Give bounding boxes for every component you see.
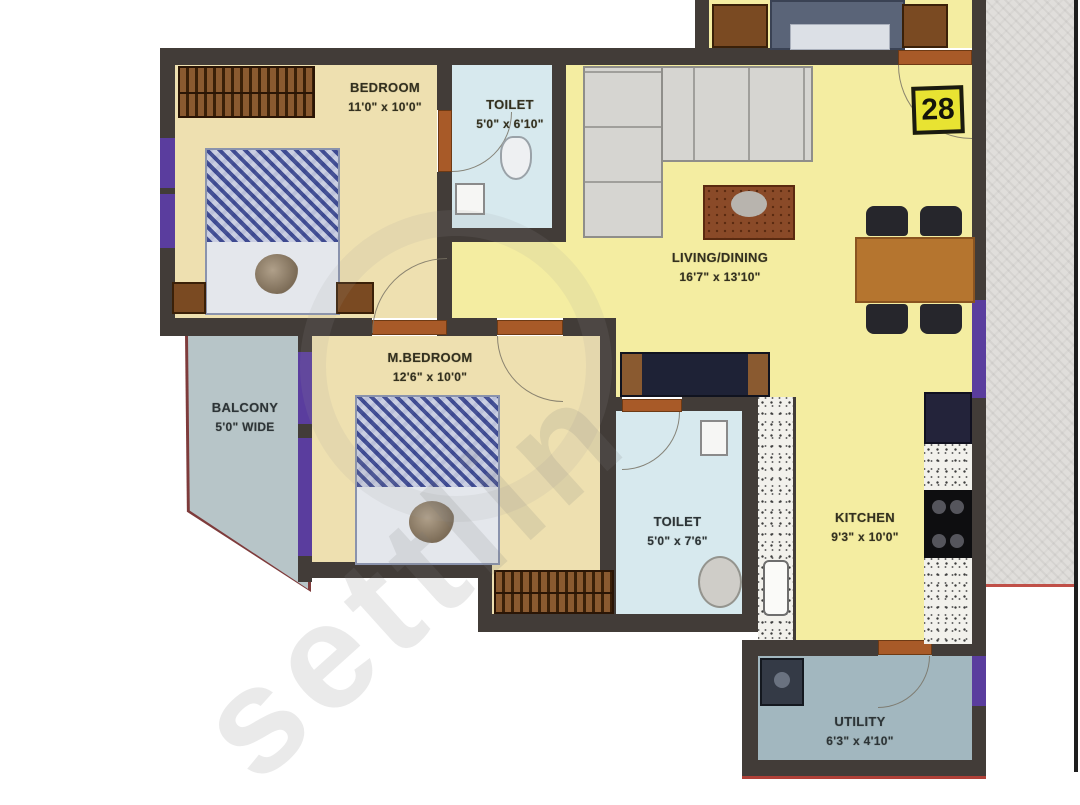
room-name: KITCHEN xyxy=(800,508,930,528)
toilet-seat xyxy=(500,136,532,180)
room-label-toilet-1: TOILET 5'0" x 6'10" xyxy=(455,95,565,133)
room-dims: 5'0" WIDE xyxy=(190,418,300,436)
room-name: BEDROOM xyxy=(315,78,455,98)
upper-unit-bed xyxy=(770,0,905,50)
dining-table xyxy=(855,237,975,303)
room-name: TOILET xyxy=(455,95,565,115)
room-label-utility: UTILITY 6'3" x 4'10" xyxy=(795,712,925,750)
kitchen-counter xyxy=(924,444,972,490)
room-name: TOILET xyxy=(625,512,730,532)
kitchen-sink xyxy=(763,560,789,616)
unit-number-badge: 28 xyxy=(911,85,965,135)
room-label-balcony: BALCONY 5'0" WIDE xyxy=(190,398,300,436)
wall xyxy=(478,614,758,632)
dining-chair xyxy=(866,304,908,334)
room-dims: 11'0" x 10'0" xyxy=(315,98,455,116)
wall xyxy=(298,424,312,438)
dining-chair xyxy=(866,206,908,236)
mattress xyxy=(790,24,890,50)
window-mullion xyxy=(160,188,175,194)
wall xyxy=(160,48,898,65)
hob xyxy=(924,490,972,558)
window xyxy=(972,652,986,706)
image-right-border xyxy=(1074,0,1078,772)
wardrobe xyxy=(178,66,315,118)
wall xyxy=(742,640,758,776)
sofa-chaise xyxy=(583,66,663,238)
burner xyxy=(950,534,964,548)
wall xyxy=(552,64,566,242)
exterior-texture xyxy=(986,0,1076,586)
room-name: LIVING/DINING xyxy=(640,248,800,268)
room-label-living-dining: LIVING/DINING 16'7" x 13'10" xyxy=(640,248,800,286)
dining-chair xyxy=(920,304,962,334)
exterior-red-line xyxy=(986,584,1076,587)
room-dims: 5'0" x 6'10" xyxy=(455,115,565,133)
room-dims: 5'0" x 7'6" xyxy=(625,532,730,550)
burner xyxy=(950,500,964,514)
upper-unit-cabinet xyxy=(712,4,768,48)
room-name: UTILITY xyxy=(795,712,925,732)
dining-chair xyxy=(920,206,962,236)
room-dims: 9'3" x 10'0" xyxy=(800,528,930,546)
burner xyxy=(932,500,946,514)
kitchen-counter xyxy=(758,397,796,640)
fridge xyxy=(924,392,972,444)
window xyxy=(298,438,312,556)
wall xyxy=(742,640,878,656)
table-decor xyxy=(731,191,767,217)
room-label-toilet-2: TOILET 5'0" x 7'6" xyxy=(625,512,730,550)
entrance-door xyxy=(898,50,972,65)
room-dims: 16'7" x 13'10" xyxy=(640,268,800,286)
floor-plan: BEDROOM 11'0" x 10'0" TOILET 5'0" x 6'10… xyxy=(0,0,1080,805)
toilet-2-door xyxy=(622,399,682,412)
toilet-1-door xyxy=(438,110,452,172)
washing-machine-door xyxy=(774,672,790,688)
room-dims: 6'3" x 4'10" xyxy=(795,732,925,750)
wall xyxy=(742,397,758,630)
room-label-kitchen: KITCHEN 9'3" x 10'0" xyxy=(800,508,930,546)
wall xyxy=(695,0,709,48)
bed-decor xyxy=(255,254,299,294)
tv-unit-cabinet xyxy=(748,354,768,395)
wash-basin xyxy=(698,556,742,608)
tv-unit-cabinet xyxy=(622,354,642,395)
burner xyxy=(932,534,946,548)
bed-blanket xyxy=(207,150,338,242)
upper-unit-cabinet xyxy=(902,4,948,48)
coffee-table xyxy=(703,185,795,240)
outer-red-line xyxy=(742,776,986,779)
bedside-table xyxy=(172,282,206,314)
cistern xyxy=(700,420,728,456)
wall xyxy=(742,760,986,776)
room-label-bedroom: BEDROOM 11'0" x 10'0" xyxy=(315,78,455,116)
tv-unit xyxy=(620,352,770,397)
kitchen-counter xyxy=(924,558,972,644)
room-name: BALCONY xyxy=(190,398,300,418)
window xyxy=(972,300,986,398)
washing-machine xyxy=(760,658,804,706)
